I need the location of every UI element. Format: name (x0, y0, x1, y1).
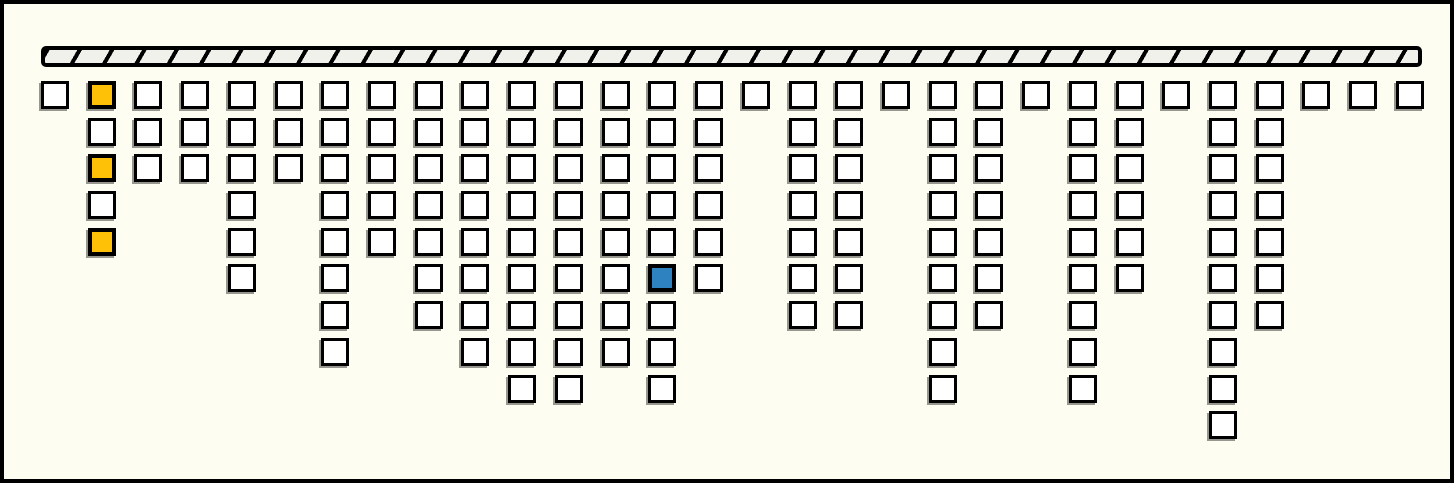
node-cell (648, 81, 676, 109)
node-cell (134, 81, 162, 109)
node-cell-yellow (88, 154, 116, 182)
node-cell (321, 338, 349, 366)
node-cell (695, 191, 723, 219)
node-grid (4, 4, 1450, 479)
node-cell (88, 118, 116, 146)
node-cell (648, 301, 676, 329)
node-column (929, 81, 957, 403)
node-column (1209, 81, 1237, 439)
node-cell (1256, 81, 1284, 109)
node-cell (1116, 118, 1144, 146)
node-cell (975, 81, 1003, 109)
node-cell (321, 301, 349, 329)
node-cell (975, 264, 1003, 292)
node-cell (134, 118, 162, 146)
node-cell (929, 191, 957, 219)
node-cell (461, 154, 489, 182)
node-cell (929, 81, 957, 109)
node-cell (508, 338, 536, 366)
node-cell (602, 191, 630, 219)
node-column (461, 81, 489, 366)
node-cell (415, 228, 443, 256)
node-column (602, 81, 630, 366)
node-column (555, 81, 583, 403)
node-cell (602, 301, 630, 329)
node-cell (1256, 118, 1284, 146)
node-cell (929, 154, 957, 182)
node-cell (368, 154, 396, 182)
node-cell (508, 154, 536, 182)
node-cell (648, 191, 676, 219)
node-column (41, 81, 69, 109)
node-cell (929, 338, 957, 366)
node-cell (695, 228, 723, 256)
node-column (508, 81, 536, 403)
node-cell (789, 301, 817, 329)
node-cell (228, 81, 256, 109)
node-column (695, 81, 723, 292)
node-column (228, 81, 256, 292)
node-cell (789, 154, 817, 182)
node-cell (275, 81, 303, 109)
node-column (1396, 81, 1424, 109)
node-cell (602, 228, 630, 256)
node-cell (1209, 118, 1237, 146)
node-cell (508, 228, 536, 256)
node-cell (555, 375, 583, 403)
node-cell (602, 154, 630, 182)
node-cell (555, 154, 583, 182)
node-cell (648, 228, 676, 256)
node-cell (415, 154, 443, 182)
node-cell (181, 118, 209, 146)
node-cell (1209, 301, 1237, 329)
node-cell (1069, 338, 1097, 366)
node-cell (88, 191, 116, 219)
node-column (835, 81, 863, 329)
node-cell (461, 338, 489, 366)
node-cell (508, 118, 536, 146)
node-cell (742, 81, 770, 109)
node-cell (1069, 375, 1097, 403)
node-cell (415, 81, 443, 109)
node-cell (648, 338, 676, 366)
diagram-canvas (0, 0, 1454, 483)
node-cell (508, 191, 536, 219)
node-column (1116, 81, 1144, 292)
node-cell (368, 191, 396, 219)
node-column (368, 81, 396, 256)
node-cell (929, 228, 957, 256)
node-cell (508, 81, 536, 109)
node-cell (602, 118, 630, 146)
node-cell (648, 154, 676, 182)
node-cell (975, 228, 1003, 256)
node-cell-blue (648, 264, 676, 292)
node-cell (929, 118, 957, 146)
node-cell-yellow (88, 81, 116, 109)
node-cell (1396, 81, 1424, 109)
node-cell (975, 118, 1003, 146)
node-cell (275, 154, 303, 182)
node-cell (975, 154, 1003, 182)
node-cell (461, 264, 489, 292)
node-cell (275, 118, 303, 146)
node-cell (602, 81, 630, 109)
node-cell (321, 154, 349, 182)
node-cell (695, 264, 723, 292)
node-cell (415, 264, 443, 292)
node-cell (321, 81, 349, 109)
node-cell (882, 81, 910, 109)
node-cell (461, 191, 489, 219)
node-column (648, 81, 676, 403)
node-cell (461, 228, 489, 256)
node-cell (1069, 301, 1097, 329)
node-cell (1209, 191, 1237, 219)
node-cell (789, 81, 817, 109)
node-cell (415, 191, 443, 219)
node-cell (929, 301, 957, 329)
node-cell (1302, 81, 1330, 109)
node-column (88, 81, 116, 256)
node-cell (1209, 411, 1237, 439)
node-cell (368, 81, 396, 109)
node-column (1256, 81, 1284, 329)
node-cell (975, 301, 1003, 329)
node-cell (835, 228, 863, 256)
node-column (882, 81, 910, 109)
node-cell (648, 118, 676, 146)
node-cell (555, 191, 583, 219)
node-cell (228, 264, 256, 292)
node-cell (228, 228, 256, 256)
node-cell (1209, 264, 1237, 292)
node-cell (555, 118, 583, 146)
node-cell (1116, 191, 1144, 219)
node-cell (1116, 264, 1144, 292)
node-cell (555, 301, 583, 329)
node-column (1162, 81, 1190, 109)
node-cell (415, 301, 443, 329)
node-cell (555, 228, 583, 256)
node-cell (555, 338, 583, 366)
node-cell (508, 301, 536, 329)
node-cell (461, 81, 489, 109)
node-cell (1069, 154, 1097, 182)
node-cell (835, 301, 863, 329)
node-cell (181, 81, 209, 109)
node-column (134, 81, 162, 182)
node-cell (321, 191, 349, 219)
node-cell (1162, 81, 1190, 109)
node-column (975, 81, 1003, 329)
node-column (789, 81, 817, 329)
node-cell (1069, 228, 1097, 256)
node-cell (1069, 191, 1097, 219)
node-cell (835, 118, 863, 146)
node-cell (835, 191, 863, 219)
node-cell (1209, 81, 1237, 109)
node-cell-yellow (88, 228, 116, 256)
node-cell (321, 118, 349, 146)
node-column (1022, 81, 1050, 109)
node-cell (602, 264, 630, 292)
node-cell (789, 264, 817, 292)
node-cell (695, 118, 723, 146)
node-column (415, 81, 443, 329)
node-cell (461, 118, 489, 146)
node-column (321, 81, 349, 366)
node-cell (835, 264, 863, 292)
node-column (1349, 81, 1377, 109)
node-cell (1209, 375, 1237, 403)
node-cell (789, 228, 817, 256)
node-cell (508, 375, 536, 403)
node-cell (1209, 338, 1237, 366)
node-cell (602, 338, 630, 366)
node-cell (134, 154, 162, 182)
node-cell (1116, 228, 1144, 256)
node-cell (1209, 154, 1237, 182)
node-cell (1349, 81, 1377, 109)
node-cell (1209, 228, 1237, 256)
node-cell (929, 264, 957, 292)
node-cell (789, 118, 817, 146)
node-cell (321, 228, 349, 256)
node-cell (228, 118, 256, 146)
node-cell (929, 375, 957, 403)
node-cell (1069, 118, 1097, 146)
node-column (181, 81, 209, 182)
node-cell (1022, 81, 1050, 109)
node-cell (835, 154, 863, 182)
node-cell (1256, 301, 1284, 329)
node-column (1302, 81, 1330, 109)
node-cell (181, 154, 209, 182)
node-cell (368, 228, 396, 256)
node-cell (648, 375, 676, 403)
node-cell (368, 118, 396, 146)
node-cell (461, 301, 489, 329)
node-cell (1069, 81, 1097, 109)
node-column (275, 81, 303, 182)
node-cell (975, 191, 1003, 219)
node-cell (1116, 81, 1144, 109)
node-column (742, 81, 770, 109)
node-cell (1116, 154, 1144, 182)
node-cell (228, 154, 256, 182)
node-cell (695, 81, 723, 109)
node-cell (1256, 191, 1284, 219)
node-cell (1256, 264, 1284, 292)
node-cell (321, 264, 349, 292)
node-cell (835, 81, 863, 109)
node-cell (695, 154, 723, 182)
node-cell (555, 264, 583, 292)
node-cell (415, 118, 443, 146)
node-cell (41, 81, 69, 109)
node-cell (1256, 228, 1284, 256)
node-cell (789, 191, 817, 219)
node-cell (228, 191, 256, 219)
node-column (1069, 81, 1097, 403)
node-cell (1256, 154, 1284, 182)
node-cell (555, 81, 583, 109)
node-cell (1069, 264, 1097, 292)
node-cell (508, 264, 536, 292)
